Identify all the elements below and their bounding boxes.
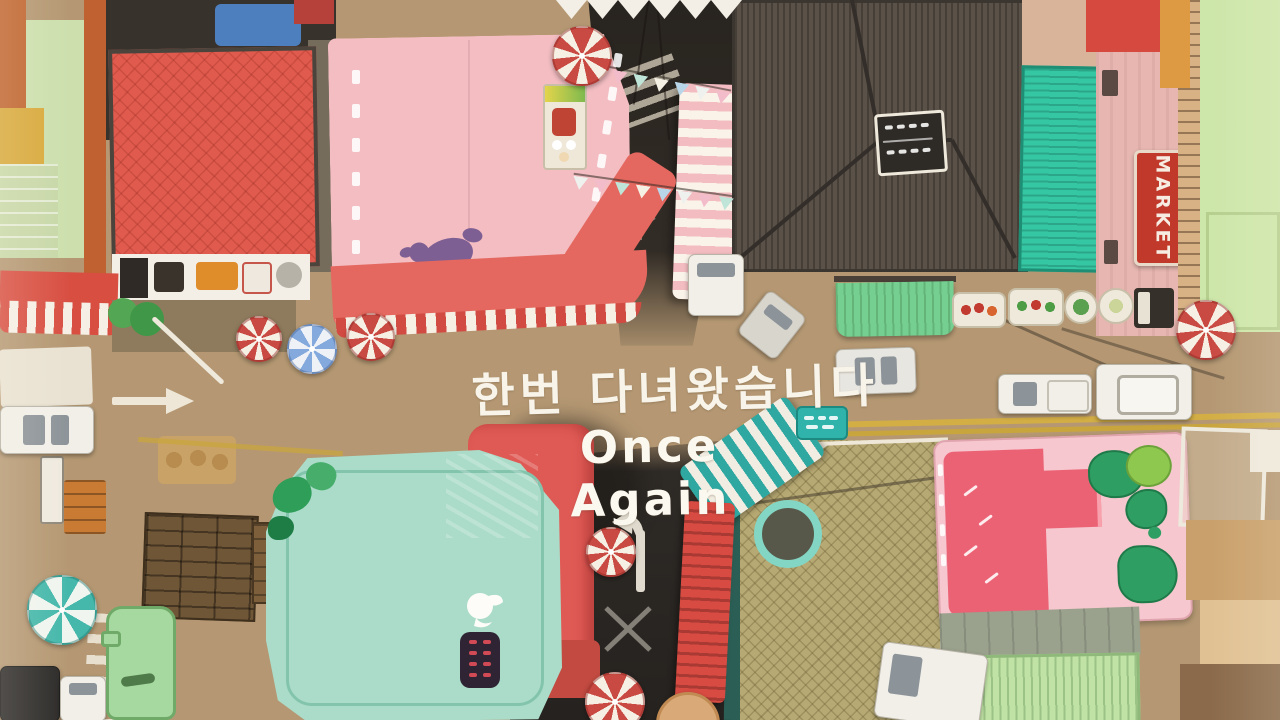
- candy-umbrella-icon-mid-3: [347, 313, 395, 361]
- orange-strip-corner: [1160, 0, 1190, 88]
- green-blob-2: [1125, 444, 1172, 488]
- shop-band-dark-door: [120, 258, 148, 298]
- red-facade-corner: [1086, 0, 1162, 52]
- white-zigzag-canopy: [556, 0, 742, 19]
- red-slat-awning: [675, 501, 735, 703]
- candy-umbrella-icon-mid-2: [287, 324, 337, 374]
- food-stall-sign: [543, 84, 587, 170]
- korean-title: 한번 다녀왔습니다: [429, 346, 921, 428]
- food-plate-mixed: [1008, 288, 1064, 326]
- candy-umbrella-icon-mid-1: [236, 316, 282, 362]
- white-car-bottom-left: [60, 676, 106, 720]
- green-blob-dot: [1148, 527, 1161, 539]
- shop-band-sign-dark: [154, 262, 184, 292]
- pink-building-bottom-right: [933, 432, 1193, 629]
- shop-band-sign-red: [242, 262, 272, 294]
- road-arrow-icon-left: [110, 388, 194, 414]
- green-blob-3: [1125, 488, 1168, 529]
- red-stall-box: [294, 0, 334, 24]
- blue-tarp: [215, 4, 301, 46]
- market-wall-window-1: [1102, 70, 1118, 96]
- market-sign-text: MARKET: [1151, 155, 1173, 262]
- green-cartoon-van: [106, 606, 176, 720]
- stall-dark-box-label: [1138, 292, 1150, 324]
- yellow-roof-block: [0, 108, 44, 166]
- green-ribbed-awning: [836, 281, 955, 337]
- mint-dark-sign: [460, 632, 500, 688]
- teal-ribbed-roof: [1018, 65, 1108, 272]
- brown-roof-sign: [874, 110, 948, 177]
- candy-umbrella-icon-right: [1176, 300, 1236, 360]
- dove-logo-icon: [462, 586, 504, 630]
- video-frame-scene: MARKET: [0, 0, 1280, 720]
- dark-car-corner: [0, 666, 60, 720]
- road-marking-cross: [598, 600, 658, 658]
- brown-building-right: [1180, 664, 1280, 720]
- red-roof-building: [108, 46, 320, 270]
- white-car-left: [0, 406, 94, 454]
- white-suv: [1096, 364, 1192, 420]
- pink-roof-dashes-left: [352, 70, 360, 285]
- market-wall-window-2: [1104, 240, 1118, 264]
- vertical-sign-white: [40, 456, 64, 524]
- white-truck-bottom: [873, 641, 989, 720]
- white-tarp-stall: [0, 346, 93, 407]
- food-plate-round-white: [1098, 288, 1134, 324]
- white-van-top-road: [688, 254, 744, 316]
- beige-building-right: [1200, 600, 1280, 670]
- shop-band-sign-orange: [196, 262, 238, 290]
- english-title: Once Again: [494, 417, 806, 528]
- green-blob-4: [1117, 544, 1179, 604]
- pink-dark-panel: [943, 449, 1049, 616]
- shop-band-vent-circle: [276, 262, 302, 288]
- pale-green-strips: [0, 164, 58, 258]
- orange-divider-wall: [84, 0, 106, 312]
- striped-awning-left-skirt: [0, 300, 118, 335]
- candy-umbrella-icon-top: [552, 26, 612, 86]
- white-pickup: [998, 374, 1092, 414]
- tan-building-right: [1186, 520, 1280, 600]
- food-plate-round-green: [1064, 290, 1098, 324]
- food-plate-red: [952, 292, 1006, 328]
- candy-umbrella-icon-bottom-1: [586, 527, 636, 577]
- orange-crate-stack: [64, 480, 106, 534]
- candy-umbrella-icon-teal: [27, 575, 97, 645]
- white-chip-right: [1250, 430, 1280, 472]
